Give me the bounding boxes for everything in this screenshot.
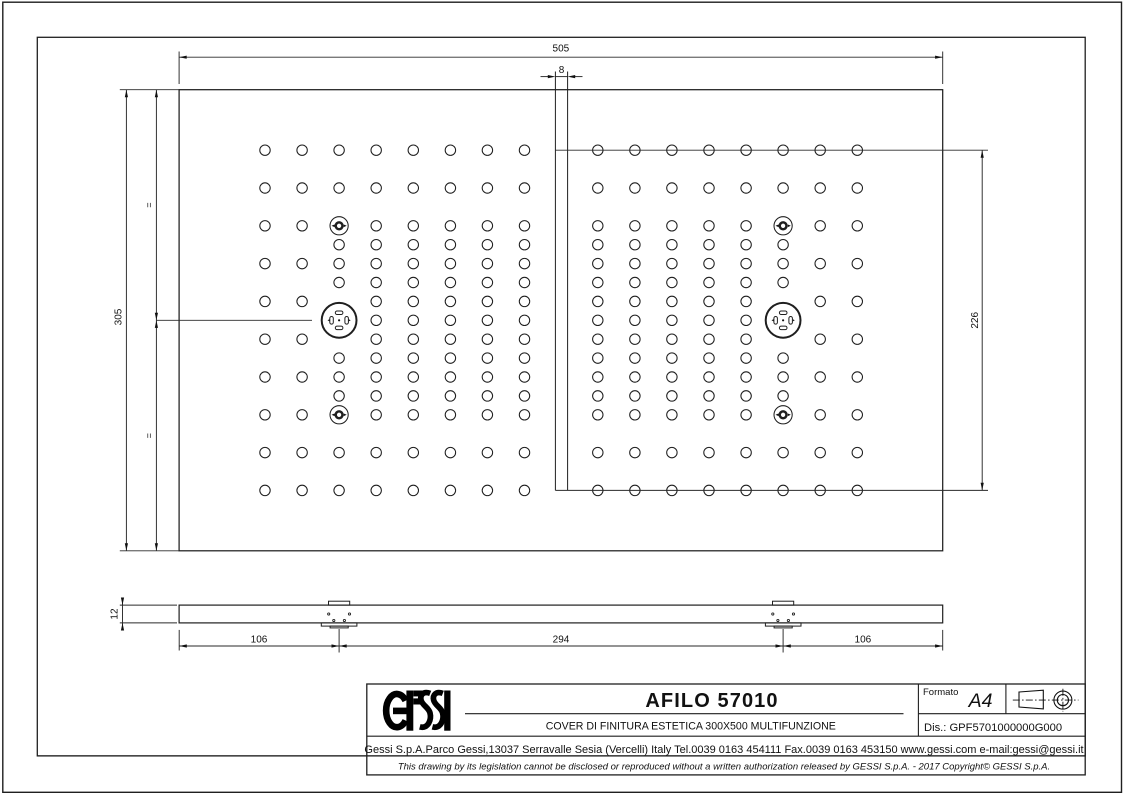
svg-text:This drawing by its legislatio: This drawing by its legislation cannot b… bbox=[398, 761, 1050, 772]
svg-text:106: 106 bbox=[855, 634, 872, 645]
svg-text:305: 305 bbox=[113, 308, 124, 325]
svg-text:=: = bbox=[144, 433, 154, 438]
svg-text:505: 505 bbox=[553, 44, 570, 55]
svg-text:12: 12 bbox=[110, 608, 121, 620]
svg-text:294: 294 bbox=[553, 634, 570, 645]
svg-text:Gessi S.p.A.Parco Gessi,13037: Gessi S.p.A.Parco Gessi,13037 Serravalle… bbox=[364, 744, 1083, 756]
svg-text:AFILO 57010: AFILO 57010 bbox=[645, 690, 778, 712]
svg-text:106: 106 bbox=[251, 634, 268, 645]
svg-text:226: 226 bbox=[970, 312, 981, 329]
svg-text:8: 8 bbox=[559, 65, 565, 76]
svg-text:Formato: Formato bbox=[923, 687, 958, 698]
svg-text:Dis.: GPF5701000000G000: Dis.: GPF5701000000G000 bbox=[924, 722, 1062, 734]
svg-text:A4: A4 bbox=[968, 690, 993, 712]
svg-text:COVER DI FINITURA ESTETICA 300: COVER DI FINITURA ESTETICA 300X500 MULTI… bbox=[546, 721, 836, 733]
svg-text:=: = bbox=[144, 202, 154, 207]
